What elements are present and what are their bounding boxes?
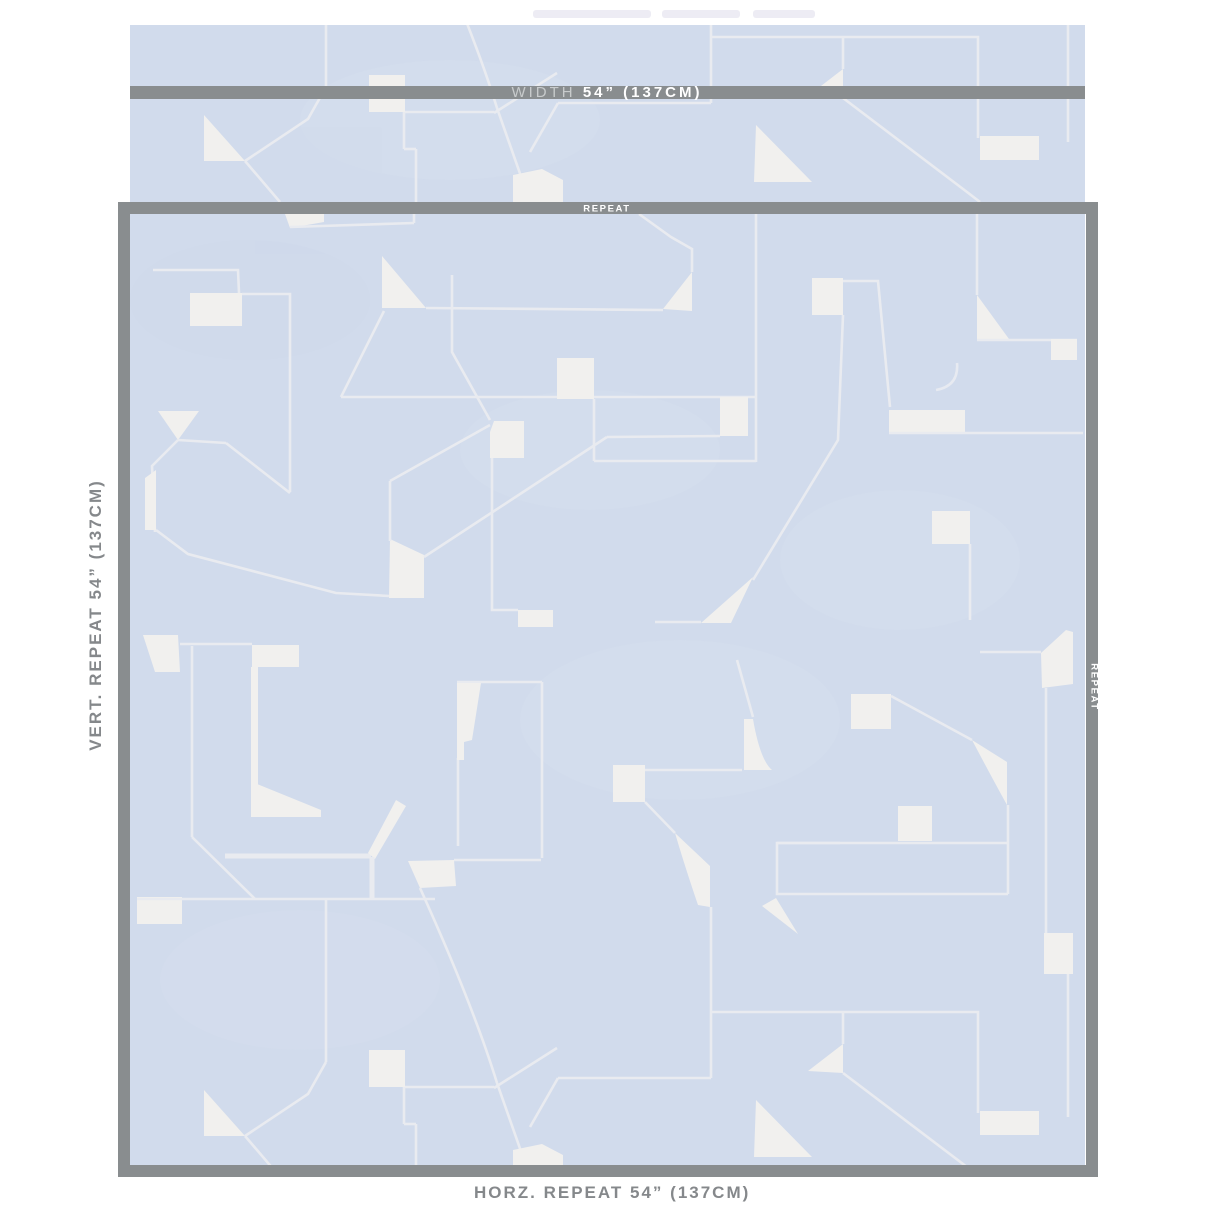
svg-text:REPEAT: REPEAT (1089, 663, 1100, 710)
svg-text:WIDTH 54” (137CM): WIDTH 54” (137CM) (511, 84, 702, 101)
svg-text:REPEAT: REPEAT (583, 204, 630, 215)
